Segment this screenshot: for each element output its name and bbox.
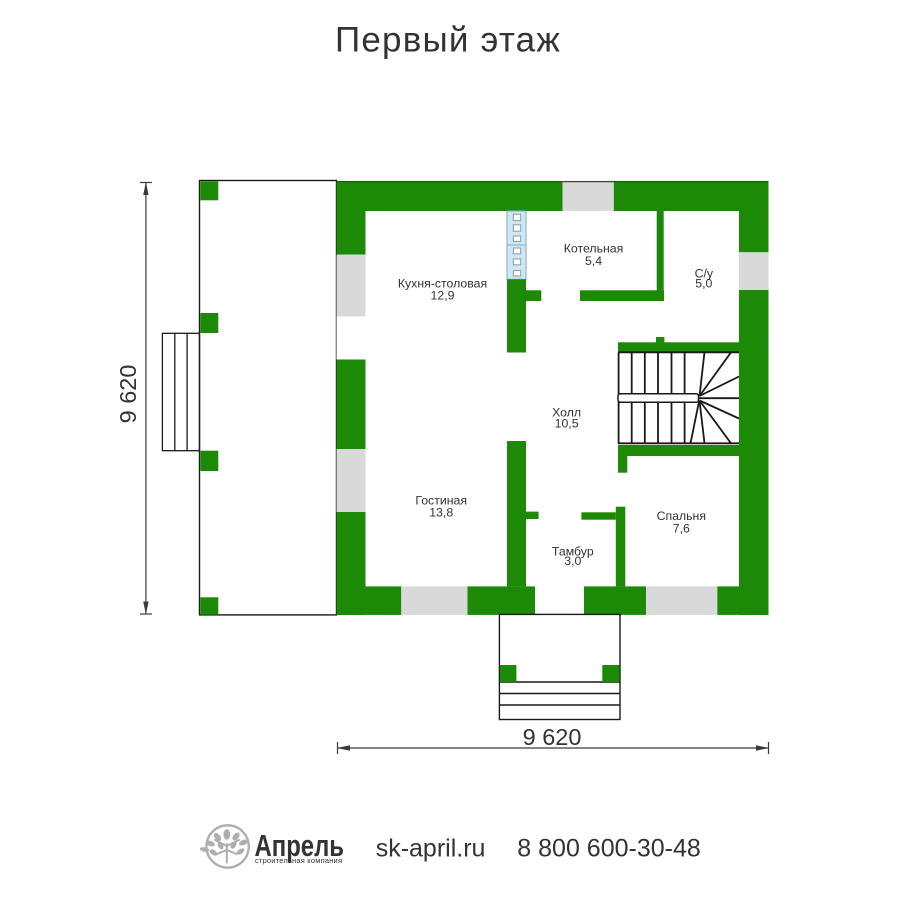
svg-text:5,4: 5,4 [585,254,602,268]
svg-text:3,0: 3,0 [564,554,581,568]
svg-text:9 620: 9 620 [115,365,141,424]
svg-text:Первый этаж: Первый этаж [335,21,561,60]
svg-text:10,5: 10,5 [555,417,579,431]
svg-text:sk-april.ru: sk-april.ru [376,834,486,862]
svg-text:9 620: 9 620 [523,724,582,750]
svg-text:5,0: 5,0 [695,277,712,291]
svg-text:строительная компания: строительная компания [255,856,342,865]
svg-text:12,9: 12,9 [431,289,455,303]
svg-text:13,8: 13,8 [429,506,453,520]
svg-text:7,6: 7,6 [673,521,690,535]
svg-text:8 800 600-30-48: 8 800 600-30-48 [517,834,700,862]
